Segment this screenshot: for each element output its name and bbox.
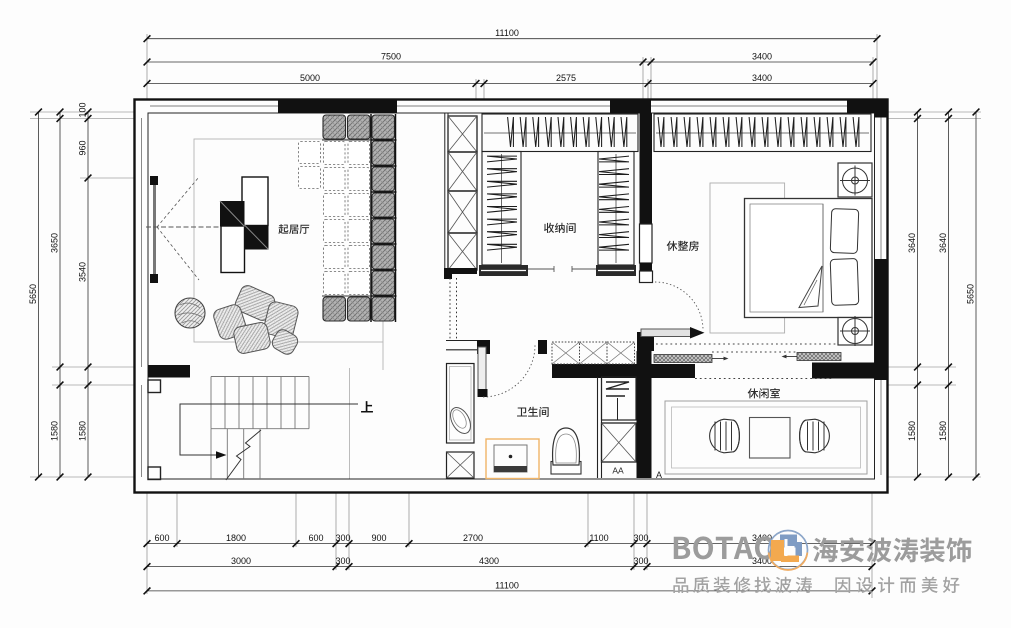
svg-text:1580: 1580 [907,421,917,441]
svg-text:300: 300 [633,533,648,543]
svg-text:3650: 3650 [50,233,60,253]
svg-text:300: 300 [335,556,350,566]
svg-text:100: 100 [78,102,88,117]
svg-text:2575: 2575 [556,73,576,83]
svg-text:5650: 5650 [28,284,38,304]
svg-text:7500: 7500 [381,52,401,62]
svg-text:3640: 3640 [907,233,917,253]
svg-text:AA: AA [612,466,624,476]
svg-text:3640: 3640 [938,233,948,253]
svg-text:900: 900 [371,533,386,543]
svg-text:1580: 1580 [78,421,88,441]
svg-text:2700: 2700 [463,533,483,543]
svg-text:600: 600 [154,533,169,543]
svg-text:300: 300 [335,533,350,543]
svg-text:1100: 1100 [589,533,608,543]
svg-text:3540: 3540 [78,262,88,282]
svg-text:3400: 3400 [752,52,772,62]
svg-text:5650: 5650 [966,284,976,304]
svg-text:4300: 4300 [479,556,499,566]
svg-text:11100: 11100 [495,580,519,590]
svg-text:5000: 5000 [300,73,320,83]
svg-text:960: 960 [78,140,88,155]
svg-text:1580: 1580 [938,421,948,441]
svg-text:A: A [656,470,662,480]
svg-text:3400: 3400 [752,73,772,83]
svg-text:300: 300 [633,556,648,566]
svg-text:3000: 3000 [231,556,251,566]
svg-text:1800: 1800 [226,533,246,543]
svg-text:11100: 11100 [495,28,519,38]
svg-text:600: 600 [308,533,323,543]
svg-text:1580: 1580 [50,421,60,441]
